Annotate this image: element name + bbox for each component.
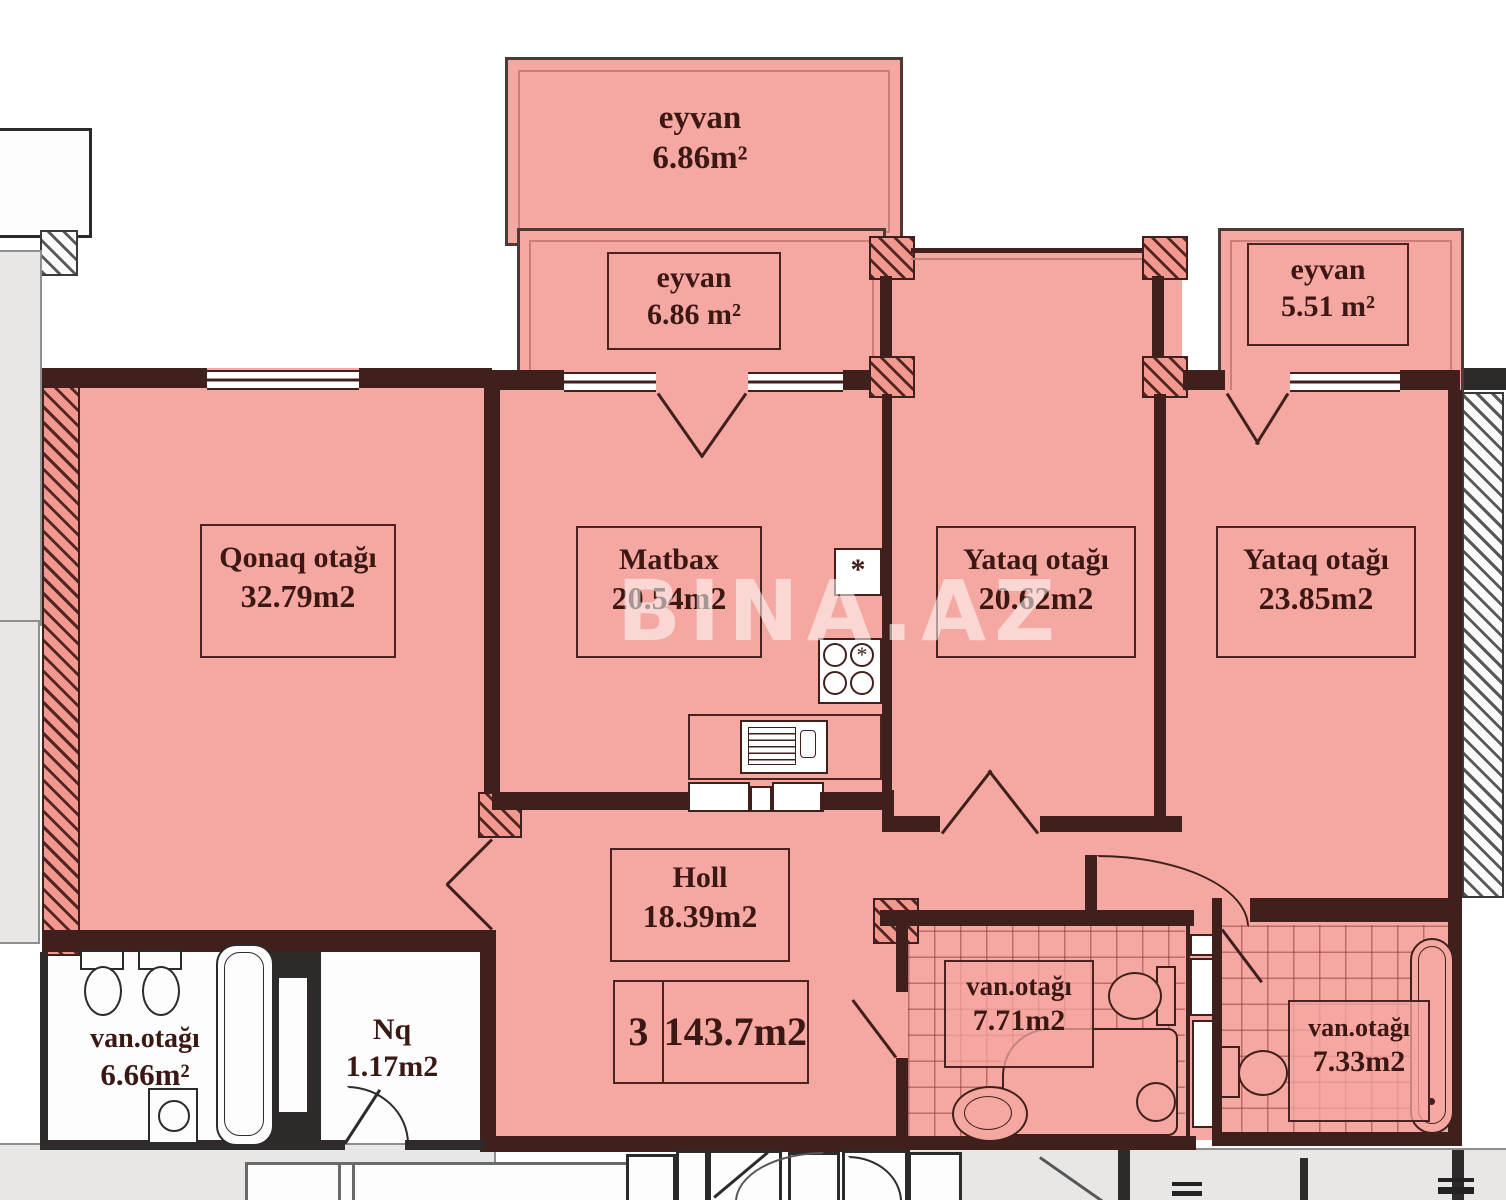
wall <box>880 1136 1196 1150</box>
room-area: 6.66m² <box>70 1056 220 1094</box>
window <box>564 372 656 392</box>
wall <box>1400 370 1460 390</box>
room-name: van.otağı <box>946 970 1092 1003</box>
room-name: Holl <box>612 860 788 897</box>
column-hatch <box>869 356 915 398</box>
sink-inner <box>964 1096 1012 1130</box>
neighbor-wall-hatch <box>1462 392 1504 898</box>
toilet-bowl <box>1108 972 1162 1020</box>
room-name: eyvan <box>609 260 779 297</box>
window-line <box>911 258 1146 260</box>
wall <box>1212 1132 1462 1146</box>
room-name: Qonaq otağı <box>202 540 394 577</box>
window <box>748 372 843 392</box>
wall <box>882 790 894 818</box>
stair-mark <box>1172 1182 1202 1196</box>
sliding-door-panel <box>688 782 750 812</box>
room-area: 7.33m2 <box>1290 1044 1428 1081</box>
neighbor-strip <box>0 250 42 626</box>
window <box>207 370 359 390</box>
room-area: 6.86 m² <box>609 297 779 334</box>
column-hatch <box>1142 236 1188 280</box>
toilet-bowl <box>142 966 180 1016</box>
room-area: 18.39m2 <box>612 897 788 936</box>
faucet-icon <box>800 730 816 758</box>
wall <box>484 388 500 792</box>
wall <box>492 370 564 390</box>
room-name: Nq <box>322 1012 462 1049</box>
bathtub-inner <box>224 952 264 1136</box>
wall <box>1250 898 1448 922</box>
room-area: 5.51 m² <box>1249 289 1407 326</box>
room-name: van.otağı <box>70 1022 220 1056</box>
label-bath2: van.otağı 7.33m2 <box>1288 1000 1430 1122</box>
wall <box>1154 394 1166 830</box>
room-area: 1.17m2 <box>322 1049 462 1086</box>
wall <box>1152 276 1164 356</box>
wall <box>40 952 48 1148</box>
room-area: 6.86m² <box>600 138 800 178</box>
label-living: Qonaq otağı 32.79m2 <box>200 524 396 658</box>
column-hatch <box>40 230 78 276</box>
wall <box>42 368 207 388</box>
neighbor-opening <box>626 1154 676 1200</box>
tub-bump <box>1136 1082 1176 1122</box>
burner <box>823 671 847 695</box>
wall <box>1183 370 1225 390</box>
washer-drum <box>158 1100 190 1132</box>
wall <box>896 926 908 992</box>
room-name: van.otağı <box>1290 1012 1428 1044</box>
divider-line <box>352 1165 355 1200</box>
washing-machine <box>148 1088 198 1144</box>
wall <box>1040 816 1182 832</box>
watermark: BINA.AZ <box>560 562 1120 660</box>
wall <box>480 930 496 1152</box>
label-balcony-mid: eyvan 6.86 m² <box>607 252 781 350</box>
room-area: 7.71m2 <box>946 1003 1092 1040</box>
neighbor-strip <box>903 1148 1506 1200</box>
neighbor-strip <box>0 620 40 944</box>
sliding-door-panel <box>750 786 772 812</box>
toilet-tank <box>1220 1046 1240 1098</box>
toilet-bowl <box>84 966 122 1016</box>
wall <box>1300 1158 1308 1200</box>
wall <box>492 792 688 810</box>
neighbor-counter <box>245 1162 643 1200</box>
wall <box>882 816 940 832</box>
label-bedroom2: Yataq otağı 23.85m2 <box>1216 526 1416 658</box>
summary-total-area: 143.7m2 <box>664 982 807 1082</box>
room-name: eyvan <box>1249 252 1407 289</box>
neighbor-opening <box>908 1152 962 1200</box>
window <box>1290 372 1400 392</box>
label-balcony-right: eyvan 5.51 m² <box>1247 243 1409 346</box>
neighbor-room-fragment <box>0 128 92 238</box>
wall <box>880 276 892 356</box>
toilet-bowl <box>1238 1050 1288 1096</box>
burner <box>850 671 874 695</box>
sliding-door-panel <box>772 782 824 812</box>
stair-mark <box>1438 1178 1474 1194</box>
wall <box>820 792 882 810</box>
label-bath-left: van.otağı 6.66m² <box>70 1022 220 1094</box>
wall <box>359 368 492 388</box>
shaft-box <box>1192 1020 1214 1128</box>
room-name: Yataq otağı <box>1218 542 1414 579</box>
divider-line <box>338 1165 341 1200</box>
wall <box>1212 898 1222 926</box>
wall <box>880 910 1194 926</box>
label-hall: Holl 18.39m2 <box>610 848 790 962</box>
wall <box>405 1140 484 1150</box>
wall <box>896 1058 908 1142</box>
neighbor-opening <box>676 1150 708 1200</box>
wall <box>911 248 1146 253</box>
label-nq: Nq 1.17m2 <box>322 1012 462 1085</box>
label-balcony-top: eyvan 6.86m² <box>600 98 800 179</box>
room-living <box>42 368 492 952</box>
summary-box: 3 143.7m2 <box>613 980 809 1084</box>
column-hatch <box>1142 356 1188 398</box>
summary-room-count: 3 <box>615 982 664 1082</box>
floor-plan: * * eyv <box>0 0 1506 1200</box>
room-area: 23.85m2 <box>1218 579 1414 618</box>
wall-pocket <box>279 978 307 1112</box>
room-name: eyvan <box>600 98 800 138</box>
room-area: 32.79m2 <box>202 577 394 616</box>
wall <box>1118 1150 1130 1200</box>
sink-drainer <box>748 727 796 765</box>
wall-hatch-living-left <box>42 368 80 956</box>
wall <box>1212 926 1222 1136</box>
label-bath1: van.otağı 7.71m2 <box>944 960 1094 1068</box>
column-hatch <box>869 236 915 280</box>
kitchen-sink <box>740 720 828 774</box>
